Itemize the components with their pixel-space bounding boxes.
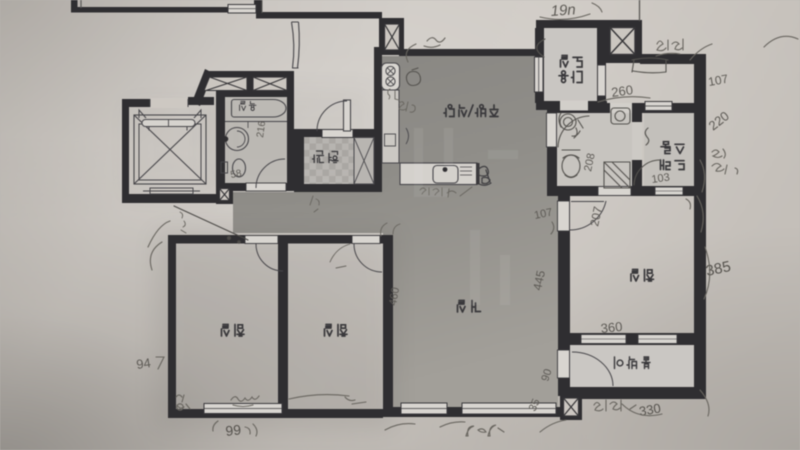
svg-text:103: 103	[651, 172, 671, 186]
svg-text:99: 99	[225, 421, 242, 439]
svg-text:94: 94	[135, 355, 151, 372]
svg-text:360: 360	[600, 319, 623, 336]
svg-text:19n: 19n	[550, 1, 576, 20]
